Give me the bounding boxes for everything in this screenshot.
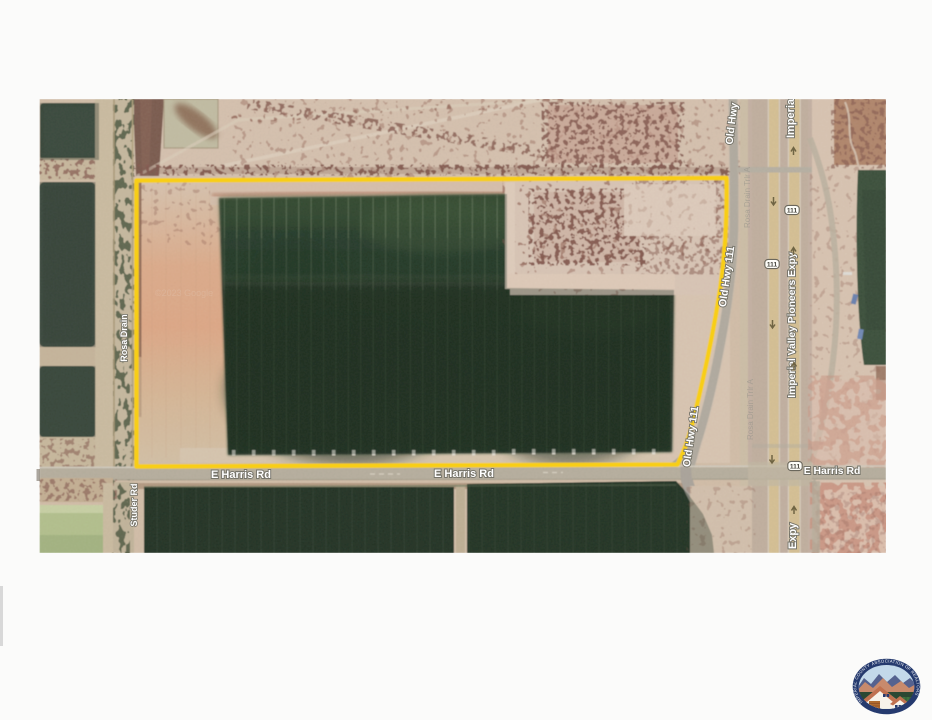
svg-text:Rosa Drain Trlr A: Rosa Drain Trlr A xyxy=(746,378,755,440)
svg-text:Studer Rd: Studer Rd xyxy=(129,483,139,526)
svg-text:E Harris Rd: E Harris Rd xyxy=(211,469,271,481)
svg-text:Rosa Drain Trlr A: Rosa Drain Trlr A xyxy=(743,166,752,228)
svg-text:Expy: Expy xyxy=(787,522,799,549)
svg-text:Imperial Valley Pioneers Expy: Imperial Valley Pioneers Expy xyxy=(787,252,798,398)
svg-text:E Harris Rd: E Harris Rd xyxy=(804,466,861,477)
svg-text:Rosa Drain: Rosa Drain xyxy=(119,314,129,362)
svg-text:©2023 Google: ©2023 Google xyxy=(155,288,213,298)
svg-text:111: 111 xyxy=(767,262,778,269)
svg-text:E Harris Rd: E Harris Rd xyxy=(434,468,494,480)
svg-text:111: 111 xyxy=(787,208,798,215)
svg-text:111: 111 xyxy=(790,464,801,471)
